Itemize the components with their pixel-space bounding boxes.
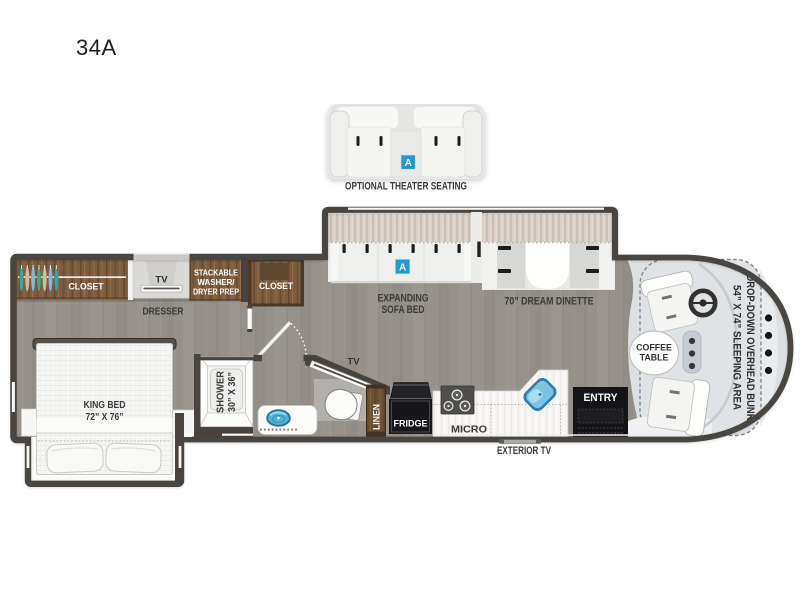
svg-text:DRESSER: DRESSER bbox=[143, 307, 185, 318]
svg-text:CLOSET: CLOSET bbox=[69, 282, 104, 293]
svg-text:30” X 36”: 30” X 36” bbox=[227, 372, 238, 412]
svg-text:WASHER/: WASHER/ bbox=[198, 278, 236, 287]
svg-text:34A: 34A bbox=[76, 35, 117, 60]
svg-text:CLOSET: CLOSET bbox=[259, 280, 293, 291]
svg-text:OPTIONAL THEATER SEATING: OPTIONAL THEATER SEATING bbox=[345, 181, 467, 193]
svg-text:72” X 76”: 72” X 76” bbox=[86, 411, 124, 423]
svg-text:EXPANDING: EXPANDING bbox=[378, 293, 429, 305]
svg-text:DROP-DOWN OVERHEAD BUNK: DROP-DOWN OVERHEAD BUNK bbox=[744, 275, 756, 421]
svg-text:EXTERIOR TV: EXTERIOR TV bbox=[497, 445, 551, 457]
svg-text:MICRO: MICRO bbox=[451, 425, 487, 436]
svg-text:FRIDGE: FRIDGE bbox=[394, 419, 429, 430]
svg-text:A: A bbox=[399, 262, 406, 273]
svg-text:SHOWER: SHOWER bbox=[216, 370, 227, 413]
svg-text:COFFEE: COFFEE bbox=[636, 343, 672, 353]
svg-text:TV: TV bbox=[155, 275, 168, 286]
svg-text:A: A bbox=[405, 158, 412, 169]
svg-text:STACKABLE: STACKABLE bbox=[194, 269, 239, 278]
svg-text:TV: TV bbox=[347, 357, 360, 368]
svg-text:ENTRY: ENTRY bbox=[584, 392, 619, 404]
svg-text:KING BED: KING BED bbox=[84, 399, 126, 411]
svg-text:SOFA BED: SOFA BED bbox=[382, 304, 425, 316]
svg-text:70” DREAM DINETTE: 70” DREAM DINETTE bbox=[505, 296, 594, 308]
svg-text:DRYER PREP: DRYER PREP bbox=[193, 288, 240, 297]
svg-text:LINEN: LINEN bbox=[372, 404, 382, 430]
svg-text:54” X 74” SLEEPING AREA: 54” X 74” SLEEPING AREA bbox=[731, 285, 743, 410]
svg-text:TABLE: TABLE bbox=[640, 353, 669, 363]
